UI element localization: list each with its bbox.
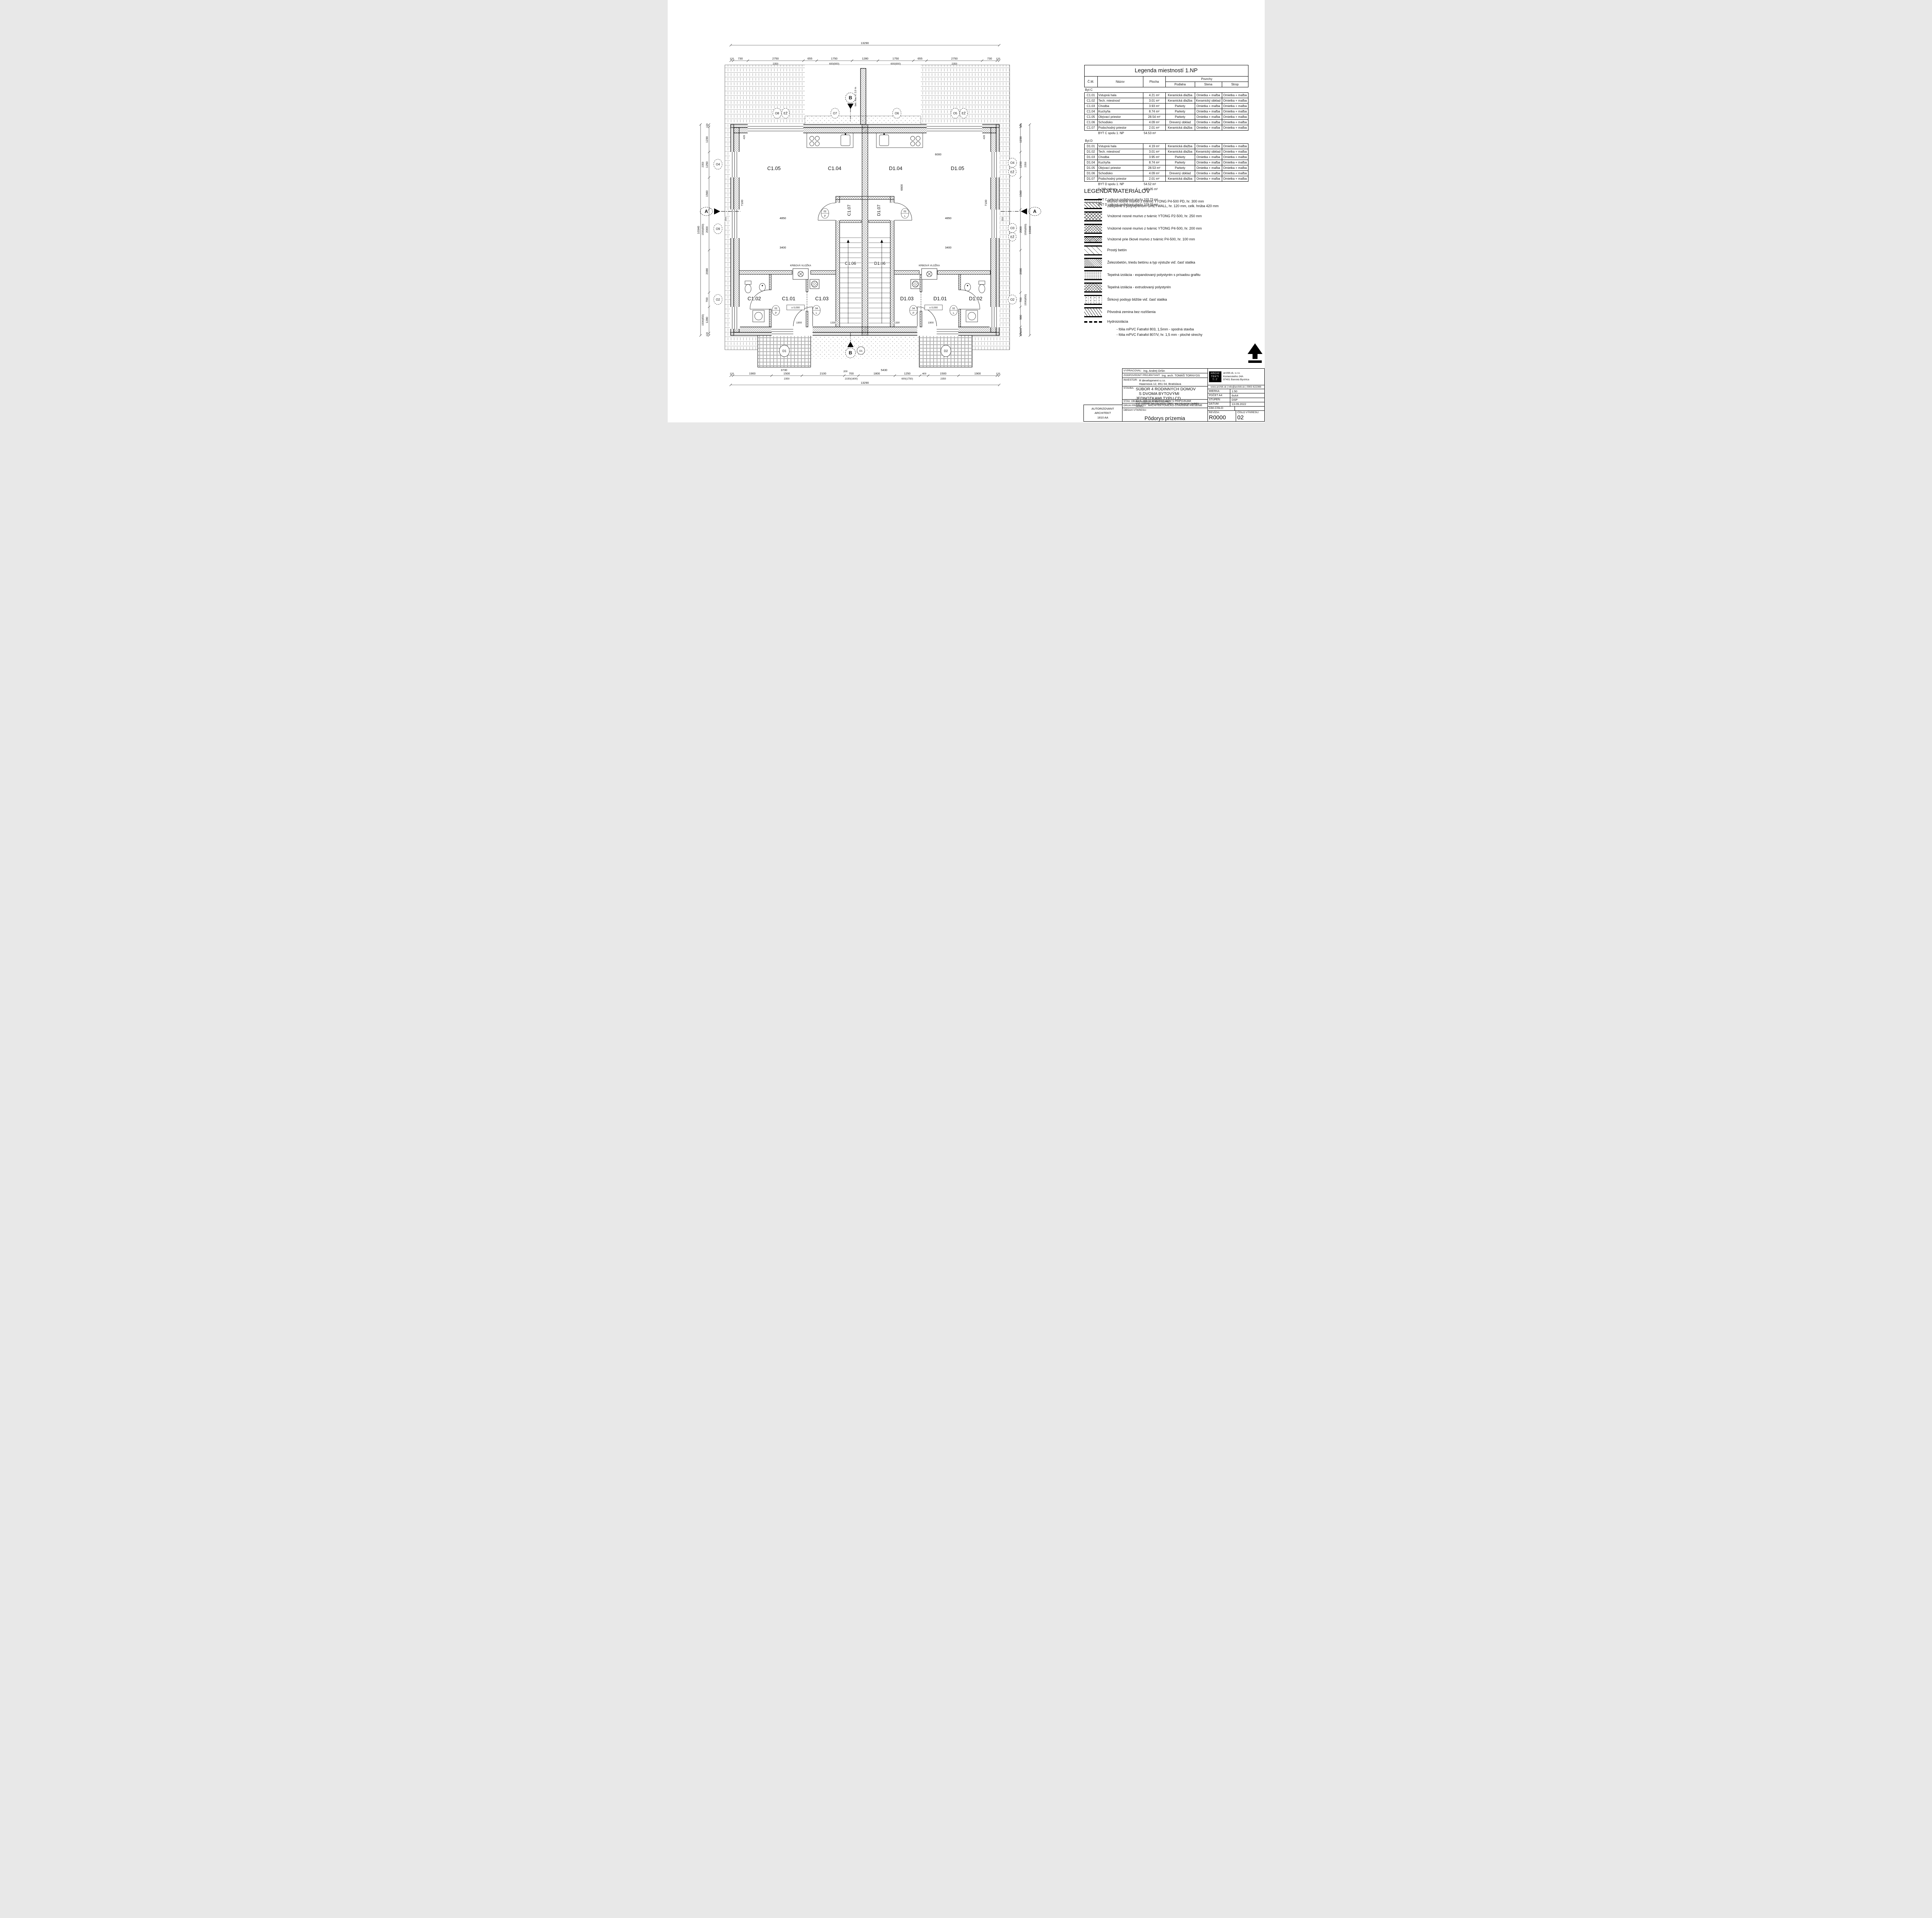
axis-label: O8 <box>775 112 779 115</box>
material-swatch-icon <box>1084 224 1102 234</box>
total-value: 54.53 m² <box>1143 131 1165 136</box>
material-text: Tepelná izolácia - extrudovaný polystyré… <box>1107 285 1171 290</box>
room-floor: Keramická dlažba <box>1165 176 1195 182</box>
svg-text:120: 120 <box>1020 123 1022 128</box>
room-legend: Legenda miestností 1.NP Č.M. Názov Ploch… <box>1084 65 1248 207</box>
row-vypracoval: VYPRACOVAL:Ing. Andrej Oršin <box>1122 369 1207 373</box>
material-text: Pôvodná zemina bez rozlíšenia <box>1107 310 1156 315</box>
room-area: 28.53 m² <box>1143 165 1165 171</box>
room-area: 4.09 m² <box>1143 120 1165 125</box>
room-floor: Parkety <box>1165 160 1195 165</box>
material-text: Murivo nosné murivo z tvárnic YTONG P4-5… <box>1107 199 1219 208</box>
room-number: C1.02 <box>1084 98 1097 104</box>
col-header: Názov <box>1097 77 1143 87</box>
svg-text:4850: 4850 <box>945 216 951 220</box>
svg-text:420: 420 <box>983 135 986 139</box>
table-row: D1.01 Vstupná hala 4.19 m² Keramická dla… <box>1084 144 1248 149</box>
svg-text:1560: 1560 <box>1019 191 1022 197</box>
authorized-architect: AUTORIZOVANÝ ARCHITEKT 1810 AA <box>1083 405 1122 422</box>
svg-text:2350: 2350 <box>702 162 704 167</box>
title-block: AUTORIZOVANÝ ARCHITEKT 1810 AA VYPRACOVA… <box>1083 368 1265 422</box>
material-swatch-icon <box>1084 295 1102 305</box>
material-item: Prostý betón <box>1084 245 1254 255</box>
room-ceiling: Omietka + maľba <box>1222 160 1248 165</box>
table-row: D1.06 Schodisko 4.09 m² Drevený obklad O… <box>1084 171 1248 176</box>
svg-text:2000: 2000 <box>1019 226 1022 233</box>
table-row: C1.02 Tech. miestnosť 3.01 m² Keramická … <box>1084 98 1248 104</box>
material-swatch-icon <box>1084 199 1102 209</box>
row-druh: DRUH PROJEKTU:ARCHITEKTONICKO-STAVEBNÉ R… <box>1122 403 1207 408</box>
svg-text:5430: 5430 <box>881 368 887 372</box>
material-item: Štrkový podsyp bližšie viď. časť statika <box>1084 295 1254 305</box>
svg-text:3400: 3400 <box>779 246 786 249</box>
axis-label: EŽ <box>961 112 965 115</box>
svg-text:1900: 1900 <box>928 322 934 324</box>
room-ceiling: Omietka + maľba <box>1222 114 1248 120</box>
axis-label: O4 <box>1010 161 1014 165</box>
svg-text:655: 655 <box>807 57 812 60</box>
axis-label: O7 <box>833 112 837 115</box>
room-area: 2.01 m² <box>1143 176 1165 182</box>
north-arrow-icon <box>1246 342 1264 366</box>
svg-text:655: 655 <box>917 57 922 60</box>
room-floor: Drevený obklad <box>1165 171 1195 176</box>
row-objekt: STAV. OBJEKT:SO-01 RODINNÝ DOM S PRÍPOJK… <box>1122 400 1207 404</box>
room-label: C1.05 <box>767 165 781 171</box>
door-tag-number: 02 <box>952 307 955 310</box>
svg-text:1280: 1280 <box>862 57 868 60</box>
material-text: Vnútorné prie čkové murivo z tvárnic P4-… <box>1107 237 1195 242</box>
col-header: Č.M. <box>1084 77 1097 87</box>
svg-text:120: 120 <box>706 332 709 336</box>
svg-text:120: 120 <box>996 373 1000 375</box>
room-wall: Omietka + maľba <box>1195 144 1222 149</box>
room-ceiling: Omietka + maľba <box>1222 125 1248 131</box>
room-number: D1.03 <box>1084 155 1097 160</box>
material-text: Prostý betón <box>1107 248 1127 253</box>
room-floor: Parkety <box>1165 109 1195 114</box>
svg-text:1900: 1900 <box>796 322 802 324</box>
svg-text:1800: 1800 <box>873 372 880 375</box>
room-area: 3.01 m² <box>1143 149 1165 155</box>
row-stavba: STAVBA: SÚBOR 4 RODINNÝCH DOMOVS DVOMA B… <box>1122 386 1207 400</box>
axis-label: EŽ <box>1010 235 1014 239</box>
total-label: BYT D spolu 1. NP <box>1097 182 1143 187</box>
svg-text:120: 120 <box>730 373 734 375</box>
material-swatch-icon <box>1084 270 1102 280</box>
material-swatch-icon <box>1084 236 1102 243</box>
svg-text:2350: 2350 <box>951 63 957 65</box>
svg-text:1500(850): 1500(850) <box>1024 224 1027 235</box>
room-wall: Omietka + maľba <box>1195 171 1222 176</box>
row-investor: INVESTOR: R development s.r.o.Haannova 1… <box>1122 378 1207 386</box>
room-name: Obývací priestor <box>1097 165 1143 171</box>
materials-title: LEGENDA MATERIÁLOV <box>1084 188 1254 194</box>
room-wall: Omietka + maľba <box>1195 104 1222 109</box>
svg-text:300: 300 <box>1020 328 1022 332</box>
svg-text:730: 730 <box>987 57 992 60</box>
svg-text:2750: 2750 <box>951 57 957 60</box>
axis-label: O2 <box>1010 298 1014 301</box>
door-tag-number: 02 <box>774 307 777 310</box>
svg-text:2100: 2100 <box>820 372 826 375</box>
material-item: Vnútorné nosné murivo z tvárnic YTONG P4… <box>1084 224 1254 234</box>
room-number: D1.02 <box>1084 149 1097 155</box>
room-area: 28.54 m² <box>1143 114 1165 120</box>
room-ceiling: Omietka + maľba <box>1222 165 1248 171</box>
svg-text:400: 400 <box>922 373 926 375</box>
drawing-title: Pôdorys prízemia <box>1124 415 1206 421</box>
col-header: Plocha <box>1143 77 1165 87</box>
group-label: Byt D <box>1084 138 1248 144</box>
svg-text:2350: 2350 <box>784 378 789 380</box>
room-wall: Omietka + maľba <box>1195 93 1222 98</box>
room-name: Tech. miestnosť <box>1097 98 1143 104</box>
room-ceiling: Omietka + maľba <box>1222 120 1248 125</box>
legend-title: Legenda miestností 1.NP <box>1084 65 1248 77</box>
architt-logo: ARCHITEKTIT∴T <box>1209 371 1221 382</box>
svg-text:1500(850): 1500(850) <box>702 314 704 326</box>
svg-text:350: 350 <box>724 217 727 221</box>
svg-text:7100: 7100 <box>984 200 988 206</box>
level-label: ± 0,000 <box>791 306 800 309</box>
room-number: C1.06 <box>1084 120 1097 125</box>
table-row: C1.05 Obývací priestor 28.54 m² Parkety … <box>1084 114 1248 120</box>
table-row: D1.02 Tech. miestnosť 3.01 m² Keramická … <box>1084 149 1248 155</box>
field-zakcislo: ZÁK.ČÍSLO: <box>1208 407 1264 411</box>
room-label: C1.07 <box>847 204 852 216</box>
floor-plan: D1 D2 bet. múr, v. 2,0 m <box>683 21 1058 400</box>
svg-text:600(1750): 600(1750) <box>901 378 913 380</box>
room-name: Tech. miestnosť <box>1097 149 1143 155</box>
section-label: B <box>849 350 852 356</box>
room-area: 4.19 m² <box>1143 144 1165 149</box>
material-item: Pôvodná zemina bez rozlíšenia <box>1084 307 1254 317</box>
material-text: Železobetón, triedu betónu a typ výstuže… <box>1107 260 1196 265</box>
room-area: 4.09 m² <box>1143 171 1165 176</box>
door-tag-number: 04 <box>912 307 915 310</box>
svg-text:980: 980 <box>1019 315 1022 320</box>
material-text: Štrkový podsyp bližšie viď. časť statika <box>1107 298 1167 302</box>
table-row: D1.04 Kuchyňa 8.74 m² Parkety Omietka + … <box>1084 160 1248 165</box>
field-pocet: POČET A4:6xA4 <box>1208 393 1264 398</box>
room-name: Kuchyňa <box>1097 109 1143 114</box>
material-item: Tepelná izolácia - extrudovaný polystyré… <box>1084 283 1254 293</box>
authorized-architect-column: AUTORIZOVANÝ ARCHITEKT 1810 AA <box>1083 368 1122 422</box>
svg-text:1500: 1500 <box>940 372 946 375</box>
svg-text:1500(850): 1500(850) <box>1024 294 1027 306</box>
field-mierka: MIERKA:1:50 <box>1208 389 1264 393</box>
total-value: 54.52 m² <box>1143 182 1165 187</box>
field-cislo-vykresu: ČÍSLO VÝKRESU: 02 <box>1236 411 1264 421</box>
revision-and-number: REVÍZIA: R0000 ČÍSLO VÝKRESU: 02 <box>1208 411 1264 421</box>
room-floor: Parkety <box>1165 155 1195 160</box>
room-area: 4.21 m² <box>1143 93 1165 98</box>
terrace-d2: D2 <box>919 335 972 367</box>
room-floor: Parkety <box>1165 165 1195 171</box>
col-header: Stena <box>1195 82 1222 87</box>
material-item-hydro: Hydroizolácia <box>1084 320 1254 324</box>
table-row: D1.03 Chodba 3.95 m² Parkety Omietka + m… <box>1084 155 1248 160</box>
svg-text:2080: 2080 <box>705 268 709 275</box>
room-name: Obývací priestor <box>1097 114 1143 120</box>
material-swatch-icon <box>1084 245 1102 255</box>
room-number: D1.04 <box>1084 160 1097 165</box>
room-label: D1.06 <box>874 261 885 266</box>
svg-text:2350: 2350 <box>940 378 946 380</box>
svg-text:2080: 2080 <box>1019 268 1022 275</box>
material-item: Železobetón, triedu betónu a typ výstuže… <box>1084 258 1254 268</box>
firm-address: architt.sk, s.r.o. Komenského 24A 97401 … <box>1223 372 1249 382</box>
firm-contact: www.architt.sk | info@architt.sk | 0903 … <box>1208 385 1264 389</box>
room-label: D1.03 <box>900 296 913 301</box>
material-swatch-icon <box>1084 211 1102 221</box>
room-number: C1.01 <box>1084 93 1097 98</box>
table-row: C1.04 Kuchyňa 8.74 m² Parkety Omietka + … <box>1084 109 1248 114</box>
room-wall: Omietka + maľba <box>1195 109 1222 114</box>
svg-text:13290: 13290 <box>861 381 869 385</box>
room-ceiling: Omietka + maľba <box>1222 149 1248 155</box>
svg-text:120: 120 <box>1020 332 1022 336</box>
room-label: D1.05 <box>951 165 964 171</box>
svg-text:1330: 1330 <box>830 322 836 324</box>
axis-label: O5 <box>953 112 957 115</box>
room-area: 8.74 m² <box>1143 109 1165 114</box>
svg-text:2350: 2350 <box>1024 162 1027 167</box>
title-block-main: VYPRACOVAL:Ing. Andrej Oršin ZODPOVEDNÝ … <box>1122 368 1208 422</box>
room-name: Vstupná hala <box>1097 144 1143 149</box>
room-number: D1.05 <box>1084 165 1097 171</box>
material-swatch-icon <box>1084 258 1102 268</box>
room-name: Vstupná hala <box>1097 93 1143 98</box>
hydro-lines: - fólia mPVC Fatrafol 803, 1,5mm - spodn… <box>1117 327 1254 338</box>
room-label: D1.01 <box>933 296 947 301</box>
material-text: Vnútorné nosné murivo z tvárnic YTONG P4… <box>1107 226 1202 231</box>
door-tag-number: 04 <box>815 307 818 310</box>
material-item: Vnútorné nosné murivo z tvárnic YTONG P2… <box>1084 211 1254 221</box>
table-row: C1.01 Vstupná hala 4.21 m² Keramická dla… <box>1084 93 1248 98</box>
room-area: 3.93 m² <box>1143 104 1165 109</box>
svg-text:120: 120 <box>996 58 1000 60</box>
section-label: B <box>849 95 852 100</box>
room-number: D1.06 <box>1084 171 1097 176</box>
room-floor: Keramická dlažba <box>1165 98 1195 104</box>
table-row: D1.07 Podschodný priestor 2.01 m² Kerami… <box>1084 176 1248 182</box>
room-wall: Omietka + maľba <box>1195 120 1222 125</box>
room-name: Podschodný priestor <box>1097 176 1143 182</box>
door-tag-side: L <box>953 312 954 315</box>
door-tag-side: L <box>816 312 817 315</box>
col-header: Podlaha <box>1165 82 1195 87</box>
svg-text:1230: 1230 <box>705 136 709 143</box>
svg-text:7100: 7100 <box>740 200 744 206</box>
axis-label: O3 <box>1010 226 1014 230</box>
svg-text:4850: 4850 <box>779 216 786 220</box>
room-ceiling: Omietka + maľba <box>1222 109 1248 114</box>
svg-text:700: 700 <box>849 372 854 375</box>
room-wall: Omietka + maľba <box>1195 125 1222 131</box>
byt-c-rows: C1.01 Vstupná hala 4.21 m² Keramická dla… <box>1084 93 1248 131</box>
material-item: Murivo nosné murivo z tvárnic YTONG P4-5… <box>1084 199 1254 209</box>
axis-label: EŽ <box>1010 170 1014 174</box>
door-tag-side: P <box>775 312 776 315</box>
svg-text:1560: 1560 <box>705 191 709 197</box>
room-floor: Keramická dlažba <box>1165 125 1195 131</box>
row-zodpovedny: ZODPOVEDNÝ PROJEKTANT:Ing. arch. TOMÁŠ T… <box>1122 373 1207 378</box>
room-ceiling: Omietka + maľba <box>1222 155 1248 160</box>
table-row: C1.03 Chodba 3.93 m² Parkety Omietka + m… <box>1084 104 1248 109</box>
room-wall: Keramický obklad <box>1195 149 1222 155</box>
room-area: 3.01 m² <box>1143 98 1165 104</box>
svg-text:2150(1600): 2150(1600) <box>845 378 857 380</box>
room-label: D1.02 <box>969 296 982 301</box>
room-label: C1.04 <box>828 165 841 171</box>
svg-text:6600: 6600 <box>900 184 903 191</box>
title-block-right: ARCHITEKTIT∴T architt.sk, s.r.o. Komensk… <box>1208 368 1265 422</box>
room-number: D1.07 <box>1084 176 1097 182</box>
level-label: ± 0,000 <box>929 306 938 309</box>
door-tag-number: 02 <box>823 210 827 213</box>
door-tag-side: L <box>904 215 906 218</box>
col-header: Povrchy <box>1165 77 1248 82</box>
material-swatch-icon <box>1084 283 1102 293</box>
room-ceiling: Omietka + maľba <box>1222 104 1248 109</box>
svg-text:200: 200 <box>843 370 847 373</box>
svg-text:120: 120 <box>706 123 709 128</box>
axis-label: O4 <box>716 163 720 166</box>
room-label: C1.01 <box>782 296 795 301</box>
hydro-swatch-icon <box>1084 321 1102 323</box>
room-number: C1.04 <box>1084 109 1097 114</box>
room-number: C1.05 <box>1084 114 1097 120</box>
room-ceiling: Omietka + maľba <box>1222 171 1248 176</box>
svg-text:3730: 3730 <box>781 368 787 372</box>
room-name: Schodisko <box>1097 120 1143 125</box>
room-ceiling: Omietka + maľba <box>1222 144 1248 149</box>
terrace-label: D2 <box>944 349 948 353</box>
room-ceiling: Omietka + maľba <box>1222 93 1248 98</box>
field-datum: DÁTUM:13.09.2022 <box>1208 402 1264 407</box>
room-number: D1.01 <box>1084 144 1097 149</box>
svg-text:13290: 13290 <box>861 41 869 45</box>
svg-text:700: 700 <box>1019 298 1022 303</box>
door-tag-side: P <box>824 215 825 218</box>
room-name: Chodba <box>1097 104 1143 109</box>
room-wall: Omietka + maľba <box>1195 165 1222 171</box>
field-revizia: REVÍZIA: R0000 <box>1208 411 1236 421</box>
svg-text:1280: 1280 <box>705 317 709 323</box>
room-label: C1.02 <box>747 296 761 301</box>
room-label: C1.06 <box>845 261 856 266</box>
svg-text:600(900): 600(900) <box>829 63 839 65</box>
table-row: C1.06 Schodisko 4.09 m² Drevený obklad O… <box>1084 120 1248 125</box>
door-tag-number: 02 <box>903 210 906 213</box>
svg-text:3400: 3400 <box>945 246 951 249</box>
door-tag-side: P <box>912 312 914 315</box>
svg-text:2750: 2750 <box>772 57 779 60</box>
firm-identity: ARCHITEKTIT∴T architt.sk, s.r.o. Komensk… <box>1208 369 1264 385</box>
svg-text:2000: 2000 <box>705 226 709 233</box>
section-label: A <box>1033 209 1036 214</box>
row-obsah: OBSAH VÝKRESU: Pôdorys prízemia <box>1122 408 1207 421</box>
room-wall: Omietka + maľba <box>1195 155 1222 160</box>
room-name: Chodba <box>1097 155 1143 160</box>
svg-text:350: 350 <box>1002 217 1004 221</box>
room-floor: Keramická dlažba <box>1165 149 1195 155</box>
svg-text:10340: 10340 <box>697 226 700 234</box>
field-stupen: STUPEŇ:DSP <box>1208 398 1264 402</box>
svg-text:1750: 1750 <box>892 57 899 60</box>
table-row: C1.07 Podschodný priestor 2.01 m² Kerami… <box>1084 125 1248 131</box>
room-wall: Omietka + maľba <box>1195 114 1222 120</box>
material-item: Vnútorné prie čkové murivo z tvárnic P4-… <box>1084 236 1254 243</box>
room-number: C1.03 <box>1084 104 1097 109</box>
svg-text:1500(850): 1500(850) <box>702 224 704 235</box>
svg-text:120: 120 <box>730 58 734 60</box>
col-header: Strop <box>1222 82 1248 87</box>
terrace-label: D1 <box>782 349 786 353</box>
svg-text:1900: 1900 <box>749 372 755 375</box>
room-floor: Parkety <box>1165 114 1195 120</box>
room-label: D1.07 <box>877 204 881 216</box>
svg-text:1750: 1750 <box>831 57 837 60</box>
drawing-sheet: D1 D2 bet. múr, v. 2,0 m <box>668 0 1265 422</box>
svg-text:600(900): 600(900) <box>890 63 900 65</box>
room-floor: Keramická dlažba <box>1165 144 1195 149</box>
svg-text:1250: 1250 <box>1019 162 1022 168</box>
table-row: D1.05 Obývací priestor 28.53 m² Parkety … <box>1084 165 1248 171</box>
svg-text:1250: 1250 <box>904 372 910 375</box>
room-floor: Keramická dlažba <box>1165 93 1195 98</box>
svg-text:2350: 2350 <box>772 63 778 65</box>
room-wall: Omietka + maľba <box>1195 176 1222 182</box>
room-label: C1.03 <box>815 296 828 301</box>
room-area: 3.95 m² <box>1143 155 1165 160</box>
axis-label: O6 <box>895 112 899 115</box>
terrace-d1: D1 <box>758 335 811 367</box>
room-wall: Omietka + maľba <box>1195 160 1222 165</box>
materials-items: Murivo nosné murivo z tvárnic YTONG P4-5… <box>1084 199 1254 317</box>
svg-text:6000: 6000 <box>935 153 941 156</box>
svg-text:730: 730 <box>738 57 743 60</box>
room-ceiling: Omietka + maľba <box>1222 176 1248 182</box>
svg-text:1250: 1250 <box>705 162 709 168</box>
materials-legend: LEGENDA MATERIÁLOV Murivo nosné murivo z… <box>1084 188 1254 337</box>
room-label: D1.04 <box>889 165 902 171</box>
room-floor: Drevený obklad <box>1165 120 1195 125</box>
total-label: BYT C spolu 1. NP <box>1097 131 1143 136</box>
axis-label: EŽ <box>783 112 787 115</box>
svg-text:700: 700 <box>705 298 709 303</box>
material-swatch-icon <box>1084 307 1102 317</box>
material-text: Tepelná izolácia - expandovaný polystyré… <box>1107 273 1201 277</box>
svg-text:420: 420 <box>743 135 746 139</box>
room-name: Schodisko <box>1097 171 1143 176</box>
svg-text:1230: 1230 <box>1019 136 1022 143</box>
svg-text:1900: 1900 <box>974 372 981 375</box>
section-label: A <box>704 209 708 214</box>
room-number: C1.07 <box>1084 125 1097 131</box>
byt-d-rows: D1.01 Vstupná hala 4.19 m² Keramická dla… <box>1084 144 1248 182</box>
room-area: 8.74 m² <box>1143 160 1165 165</box>
material-text: Vnútorné nosné murivo z tvárnic YTONG P2… <box>1107 214 1202 219</box>
axis-label: O1 <box>859 350 862 352</box>
fireplace-label: KRBOVÁ VLOŽKA <box>790 264 811 267</box>
room-area: 2.01 m² <box>1143 125 1165 131</box>
axis-label: O2 <box>716 298 720 301</box>
svg-text:10340: 10340 <box>1028 226 1032 234</box>
room-name: Podschodný priestor <box>1097 125 1143 131</box>
